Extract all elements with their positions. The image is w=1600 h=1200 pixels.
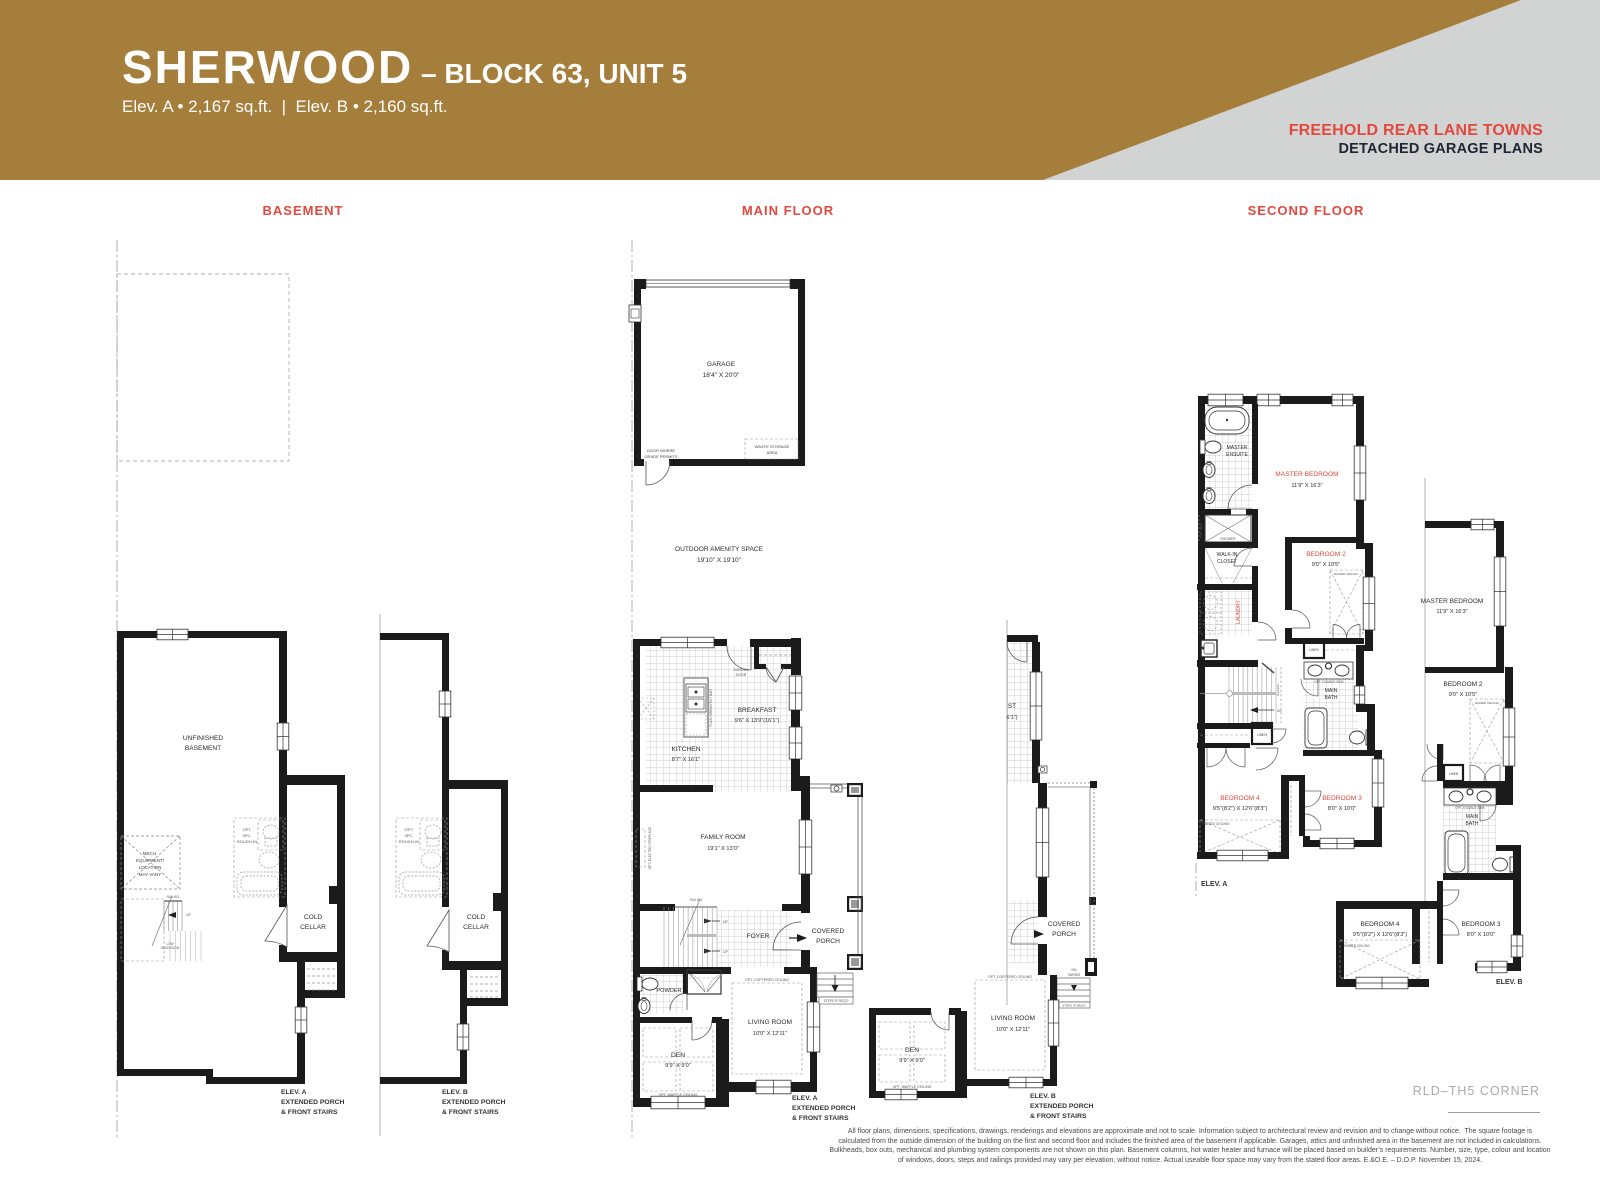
svg-text:BATH: BATH (1325, 695, 1338, 701)
svg-text:DOOR: DOOR (736, 673, 747, 677)
svg-text:3PC.: 3PC. (405, 833, 414, 838)
svg-text:FLUSH BREAKFAST BAR: FLUSH BREAKFAST BAR (709, 689, 713, 727)
svg-text:OUTDOOR AMENITY SPACE: OUTDOOR AMENITY SPACE (675, 546, 764, 553)
svg-text:8'0" X 10'0": 8'0" X 10'0" (1328, 806, 1357, 812)
svg-text:COVERED: COVERED (812, 928, 845, 935)
svg-text:RAILING: RAILING (1276, 683, 1280, 696)
svg-text:COLD: COLD (304, 914, 323, 921)
svg-text:UP: UP (723, 920, 729, 924)
svg-text:OPT. DOUBLE SINK: OPT. DOUBLE SINK (1314, 680, 1344, 684)
svg-text:SHOWER: SHOWER (1220, 537, 1236, 541)
svg-text:MAIN: MAIN (1325, 688, 1338, 694)
svg-text:LINEN: LINEN (1257, 733, 1268, 737)
svg-text:BEDROOM 3: BEDROOM 3 (1461, 921, 1500, 928)
svg-text:OPT. WAFFLE CEILING: OPT. WAFFLE CEILING (893, 1085, 932, 1089)
svg-text:EXTENDED PORCH: EXTENDED PORCH (792, 1105, 856, 1112)
svg-text:RAISED CEILING: RAISED CEILING (1202, 822, 1229, 826)
svg-text:ELEV. A: ELEV. A (792, 1095, 818, 1102)
svg-text:OPT. SEAT: OPT. SEAT (1199, 522, 1203, 537)
svg-text:6'1"): 6'1") (1007, 715, 1018, 721)
svg-text:BEDROOM 2: BEDROOM 2 (1306, 551, 1346, 558)
svg-text:ROUGH-IN: ROUGH-IN (399, 839, 419, 844)
svg-text:RAISED CEILING: RAISED CEILING (1344, 944, 1370, 948)
svg-text:ELEV. A: ELEV. A (1201, 881, 1227, 888)
svg-text:ELEV. B: ELEV. B (1496, 979, 1523, 986)
svg-text:LINEN: LINEN (1449, 772, 1459, 776)
svg-text:8'0" X 10'0": 8'0" X 10'0" (1467, 932, 1496, 938)
svg-text:9'6" X 13'9"(16'1"): 9'6" X 13'9"(16'1") (735, 718, 780, 724)
svg-text:UP: UP (723, 950, 729, 954)
svg-text:RAILING: RAILING (167, 895, 180, 899)
svg-text:9'9" X 9'0": 9'9" X 9'0" (899, 1058, 924, 1064)
svg-text:DN: DN (1071, 968, 1077, 972)
svg-text:18'4" X 20'0": 18'4" X 20'0" (703, 372, 740, 379)
svg-text:OPT.: OPT. (243, 827, 252, 832)
svg-text:BATH: BATH (1466, 821, 1479, 827)
svg-text:EXTENDED PORCH: EXTENDED PORCH (442, 1099, 506, 1106)
svg-text:& FRONT STAIRS: & FRONT STAIRS (281, 1109, 338, 1116)
svg-text:3PC.: 3PC. (243, 833, 252, 838)
svg-text:MASTER BEDROOM: MASTER BEDROOM (1421, 598, 1483, 605)
svg-text:OPT. DOUBLE SINK: OPT. DOUBLE SINK (1455, 806, 1485, 810)
svg-text:VARIES: VARIES (1068, 973, 1081, 977)
svg-text:OPT. ELECTRIC FIREPLACE: OPT. ELECTRIC FIREPLACE (648, 827, 652, 869)
svg-text:MASTER BEDROOM: MASTER BEDROOM (1275, 471, 1338, 478)
svg-text:RAISED CEILING: RAISED CEILING (1475, 701, 1500, 705)
svg-text:DEN: DEN (671, 1052, 685, 1059)
svg-text:8'7" X 16'1": 8'7" X 16'1" (672, 757, 701, 763)
svg-text:MAIN: MAIN (1466, 814, 1479, 820)
svg-text:& FRONT STAIRS: & FRONT STAIRS (792, 1115, 849, 1122)
svg-text:GARAGE: GARAGE (707, 361, 736, 368)
svg-text:GARDEN: GARDEN (733, 668, 749, 672)
svg-text:& FRONT STAIRS: & FRONT STAIRS (1030, 1113, 1087, 1120)
svg-text:PORCH: PORCH (1052, 931, 1076, 938)
svg-text:PORCH: PORCH (816, 938, 840, 945)
svg-text:ELEV. A: ELEV. A (281, 1089, 307, 1096)
svg-text:WALK-IN: WALK-IN (1217, 552, 1238, 558)
svg-text:OPT.: OPT. (405, 827, 414, 832)
svg-text:CELLAR: CELLAR (463, 924, 489, 931)
svg-text:UNFINISHED: UNFINISHED (183, 735, 224, 742)
svg-text:EXTENDED PORCH: EXTENDED PORCH (281, 1099, 345, 1106)
svg-text:11'9" X 16'3": 11'9" X 16'3" (1436, 609, 1467, 615)
svg-text:HEADROOM: HEADROOM (161, 946, 180, 950)
svg-text:19'10" X 19'10": 19'10" X 19'10" (697, 557, 742, 564)
svg-text:UP: UP (186, 913, 192, 917)
svg-text:9'9" X 9'0": 9'9" X 9'0" (665, 1063, 690, 1069)
svg-text:BEDROOM 4: BEDROOM 4 (1360, 921, 1399, 928)
svg-text:DOOR WHERE: DOOR WHERE (647, 448, 675, 453)
svg-text:EXTENDED PORCH: EXTENDED PORCH (1030, 1103, 1094, 1110)
svg-text:EQUIPMENT/: EQUIPMENT/ (136, 858, 165, 863)
svg-text:FOYER: FOYER (747, 933, 770, 940)
svg-text:COLD: COLD (467, 914, 486, 921)
svg-text:DN: DN (1277, 709, 1282, 713)
svg-text:OPT. COFFERED CEILING: OPT. COFFERED CEILING (745, 978, 789, 982)
svg-text:WASTE STORAGE: WASTE STORAGE (755, 444, 790, 449)
svg-text:9'0" X 10'5": 9'0" X 10'5" (1312, 562, 1341, 568)
svg-text:ROUGH-IN: ROUGH-IN (237, 839, 257, 844)
svg-text:ST: ST (1008, 703, 1016, 710)
svg-text:POWDER: POWDER (656, 988, 681, 994)
svg-text:LIVING ROOM: LIVING ROOM (991, 1015, 1035, 1022)
svg-text:STEPS IF REQ'D: STEPS IF REQ'D (1062, 1004, 1086, 1008)
svg-text:10'0" X 12'11": 10'0" X 12'11" (753, 1031, 787, 1037)
svg-text:9'5"(8'2") X 12'6"(8'3"): 9'5"(8'2") X 12'6"(8'3") (1353, 932, 1408, 938)
svg-text:LAUNDRY: LAUNDRY (1236, 599, 1242, 623)
svg-text:DEN: DEN (905, 1047, 919, 1054)
svg-text:BEDROOM 3: BEDROOM 3 (1322, 795, 1362, 802)
svg-text:RAILING: RAILING (690, 898, 703, 902)
svg-text:KITCHEN: KITCHEN (672, 746, 701, 753)
svg-text:STEPS IF REQ'D: STEPS IF REQ'D (824, 999, 850, 1003)
svg-text:BEDROOM 4: BEDROOM 4 (1220, 795, 1260, 802)
svg-text:19'1" X 13'0": 19'1" X 13'0" (707, 846, 739, 852)
svg-text:9'5"(8'2") X 12'6"(8'3"): 9'5"(8'2") X 12'6"(8'3") (1213, 806, 1268, 812)
svg-text:LIVING ROOM: LIVING ROOM (748, 1019, 792, 1026)
svg-text:LINEN: LINEN (1309, 648, 1319, 652)
svg-text:BEDROOM 2: BEDROOM 2 (1443, 681, 1482, 688)
svg-text:ELEV. B: ELEV. B (442, 1089, 468, 1096)
svg-text:& FRONT STAIRS: & FRONT STAIRS (442, 1109, 499, 1116)
svg-text:ENSUITE: ENSUITE (1226, 452, 1248, 458)
svg-text:BREAKFAST: BREAKFAST (738, 707, 777, 714)
svg-text:9'0" X 10'5": 9'0" X 10'5" (1449, 692, 1478, 698)
svg-text:AREA: AREA (767, 450, 778, 455)
svg-text:MECH.: MECH. (143, 851, 158, 856)
svg-text:BASEMENT: BASEMENT (185, 745, 221, 752)
svg-text:MAY VARY: MAY VARY (139, 872, 161, 877)
svg-text:GRADE PERMITS: GRADE PERMITS (644, 454, 677, 459)
svg-text:OPT. COFFERED CEILING: OPT. COFFERED CEILING (988, 975, 1032, 979)
svg-text:MASTER: MASTER (1227, 445, 1248, 451)
svg-text:ELEV. B: ELEV. B (1030, 1093, 1056, 1100)
svg-text:COVERED: COVERED (1048, 921, 1081, 928)
svg-text:CELLAR: CELLAR (300, 924, 326, 931)
svg-text:RAISED CEILING: RAISED CEILING (1334, 572, 1359, 576)
svg-text:10'0" X 12'11": 10'0" X 12'11" (996, 1027, 1030, 1033)
svg-text:11'9" X 16'3": 11'9" X 16'3" (1291, 483, 1322, 489)
svg-text:LOCATION: LOCATION (139, 865, 162, 870)
svg-text:FAMILY ROOM: FAMILY ROOM (700, 834, 745, 841)
